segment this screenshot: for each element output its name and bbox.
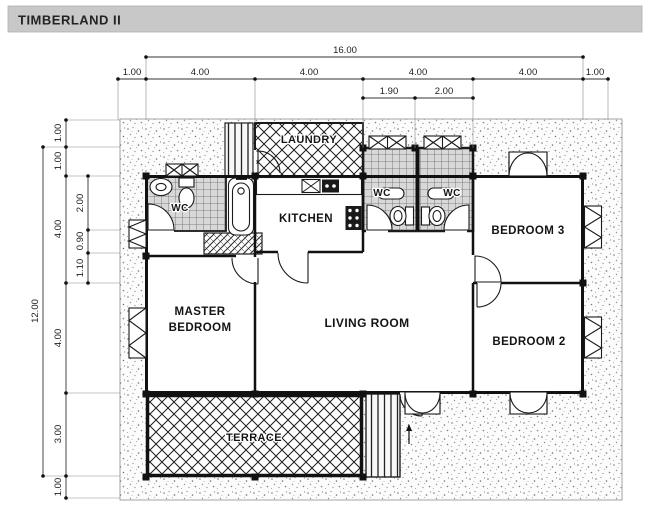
floor-plan-page: TIMBERLAND II [0, 0, 650, 520]
service-steps [225, 123, 253, 176]
bedroom2-right-window [585, 317, 602, 358]
label-bedroom2: BEDROOM 2 [492, 336, 565, 348]
dim-top-6: 1.00 [586, 67, 605, 78]
label-terrace: TERRACE [226, 432, 282, 444]
dim-top-3: 4.00 [300, 67, 319, 78]
label-wc-master: WC [171, 203, 188, 214]
dim-top-1: 1.00 [123, 67, 142, 78]
dim-top-total: 16.00 [333, 45, 357, 56]
dim-top-sub-1: 1.90 [380, 86, 399, 97]
label-laundry: LAUNDRY [281, 134, 337, 146]
bath-sink [150, 179, 172, 196]
dim-left-sub-2: 0.90 [75, 232, 86, 251]
label-wc-1: WC [373, 188, 390, 199]
dim-left-total: 12.00 [30, 299, 41, 323]
wc2-window [424, 136, 461, 149]
master-bath-window [166, 164, 198, 176]
master-bath-left-window [129, 220, 146, 248]
dim-top-2: 4.00 [191, 67, 210, 78]
dim-left-2: 1.00 [53, 152, 64, 171]
page-title: TIMBERLAND II [18, 13, 121, 28]
dim-top-5: 4.00 [519, 67, 538, 78]
label-kitchen: KITCHEN [279, 213, 333, 225]
living-room-window [405, 392, 440, 414]
dim-top-sub-2: 2.00 [435, 86, 454, 97]
dim-top-4: 4.00 [409, 67, 428, 78]
dim-left-sub-3: 1.10 [75, 259, 86, 278]
kitchen-range [346, 206, 362, 230]
bathtub [229, 175, 254, 235]
dim-left-6: 1.00 [53, 478, 64, 497]
wc1-window [369, 136, 406, 149]
bedroom3-right-window [585, 206, 602, 248]
laundry-area [255, 123, 363, 176]
label-master-line2: BEDROOM [169, 322, 232, 334]
dim-left-4: 4.00 [53, 329, 64, 348]
label-wc-2: WC [443, 188, 460, 199]
bedroom2-bottom-window [510, 392, 547, 414]
label-bedroom3: BEDROOM 3 [491, 225, 564, 237]
bedroom3-top-window [509, 152, 547, 176]
label-living-room: LIVING ROOM [324, 316, 409, 330]
master-bedroom-window [129, 308, 146, 358]
dim-left-3: 4.00 [53, 220, 64, 239]
wc1-toilet [390, 207, 414, 226]
dim-left-1: 1.00 [53, 124, 64, 143]
label-master-line1: MASTER [175, 306, 226, 318]
dim-left-sub-1: 2.00 [75, 194, 86, 213]
dim-left-5: 3.00 [53, 425, 64, 444]
floor-plan-drawing: TIMBERLAND II [0, 0, 650, 520]
kitchen-counter [257, 178, 362, 195]
wc2-toilet [422, 207, 446, 226]
closet [204, 233, 262, 254]
entry-steps [366, 394, 400, 477]
